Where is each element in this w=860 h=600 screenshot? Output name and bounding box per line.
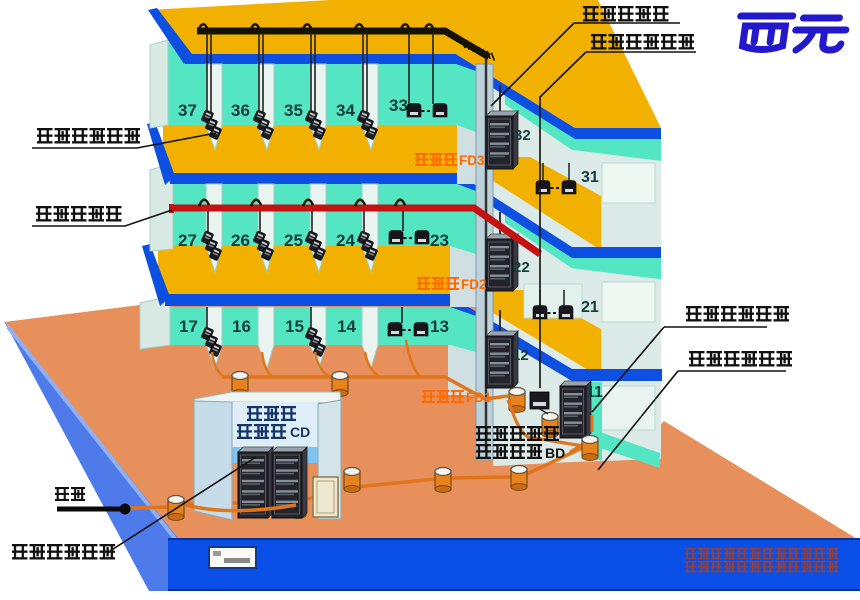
svg-text:25: 25: [284, 231, 303, 250]
svg-text:FD1: FD1: [466, 390, 492, 405]
svg-text:17: 17: [179, 317, 198, 336]
svg-text:37: 37: [178, 101, 197, 120]
svg-text:21: 21: [581, 299, 599, 316]
svg-text:24: 24: [336, 231, 355, 250]
svg-text:11: 11: [586, 384, 603, 401]
svg-text:16: 16: [232, 317, 251, 336]
svg-text:33: 33: [389, 96, 408, 115]
svg-text:23: 23: [430, 231, 449, 250]
svg-text:CD: CD: [290, 424, 310, 440]
svg-text:22: 22: [513, 259, 530, 276]
svg-text:12: 12: [512, 347, 529, 364]
svg-text:32: 32: [514, 127, 531, 144]
svg-text:34: 34: [336, 101, 355, 120]
svg-text:14: 14: [337, 317, 356, 336]
svg-text:26: 26: [231, 231, 250, 250]
svg-text:FD2: FD2: [461, 277, 487, 292]
svg-text:36: 36: [231, 101, 250, 120]
svg-text:35: 35: [284, 101, 303, 120]
svg-text:15: 15: [285, 317, 304, 336]
svg-text:13: 13: [430, 317, 449, 336]
svg-text:27: 27: [178, 231, 197, 250]
svg-text:31: 31: [581, 169, 599, 186]
svg-text:FD3: FD3: [459, 153, 485, 168]
svg-text:BD: BD: [545, 445, 565, 461]
